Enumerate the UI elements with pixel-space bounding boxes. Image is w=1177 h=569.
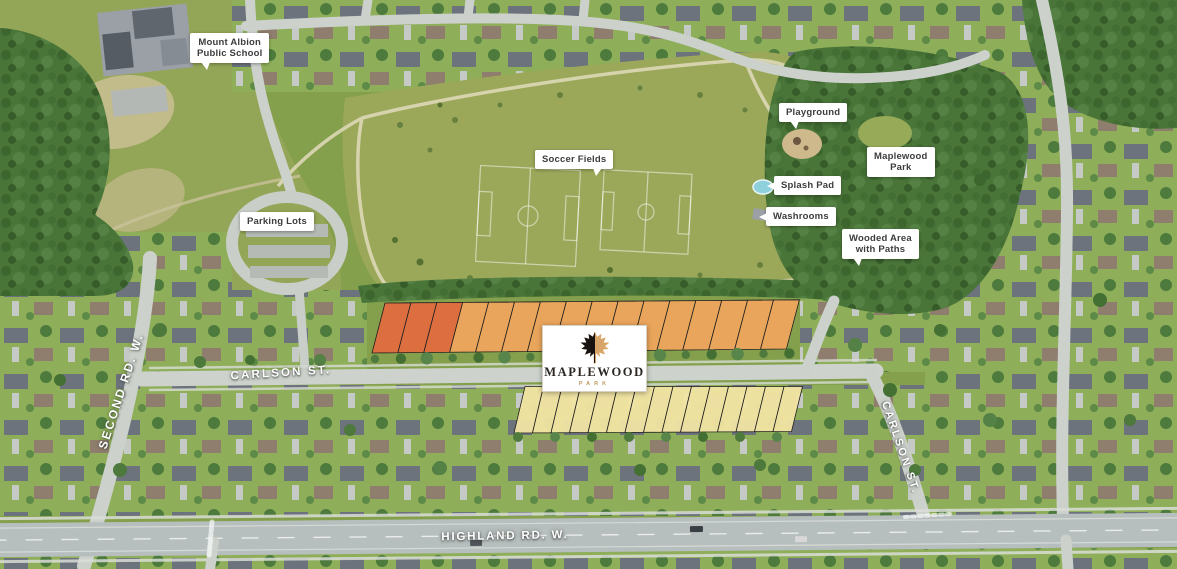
parking-row [250,266,328,278]
tree [526,353,534,361]
tree [759,350,767,358]
site-map: Mount Albion Public School Parking Lots … [0,0,1177,569]
tree [449,354,457,362]
street-label-highland-rd: HIGHLAND RD. W. [441,530,568,544]
tree [473,352,483,362]
callout-splash-pad: Splash Pad [774,176,841,195]
maple-leaf-icon [577,331,613,364]
callout-washrooms: Washrooms [766,207,836,226]
callout-text: Washrooms [773,211,829,222]
tree [661,432,671,442]
logo-subtitle: PARK [579,381,610,387]
callout-text: Park [874,162,928,173]
playground-area [782,129,822,159]
forest-clearing [858,116,912,150]
callout-text: with Paths [849,244,912,255]
tree [498,351,510,363]
tree [772,432,782,442]
parking-row [248,245,330,258]
tree [513,432,523,442]
callout-text: Soccer Fields [542,154,606,165]
callout-playground: Playground [779,103,847,122]
tree [784,348,794,358]
tree [396,353,406,363]
callout-parking-lots: Parking Lots [240,212,314,231]
tree [587,432,597,442]
callout-soccer-fields: Soccer Fields [535,150,613,169]
maplewood-logo: MAPLEWOOD PARK [542,325,647,392]
callout-text: Wooded Area [849,233,912,244]
tree [682,351,690,359]
tree [421,352,433,364]
callout-wooded-area: Wooded Area with Paths [842,229,919,259]
tree [550,432,560,442]
tree [735,432,745,442]
callout-text: Mount Albion [197,37,262,48]
tree [654,349,666,361]
callout-maplewood-park: Maplewood Park [867,147,935,177]
tree [731,348,743,360]
tree [707,349,717,359]
callout-text: Playground [786,107,840,118]
callout-text: Parking Lots [247,216,307,227]
callout-text: Splash Pad [781,180,834,191]
tree [371,355,379,363]
callout-school: Mount Albion Public School [190,33,269,63]
leaf-left-half [579,331,595,364]
callout-text: Public School [197,48,262,59]
callout-text: Maplewood [874,151,928,162]
tree [698,432,708,442]
aerial-map [0,0,1177,569]
south-lot-row [514,387,803,434]
logo-title: MAPLEWOOD [544,365,645,380]
tree [624,432,634,442]
